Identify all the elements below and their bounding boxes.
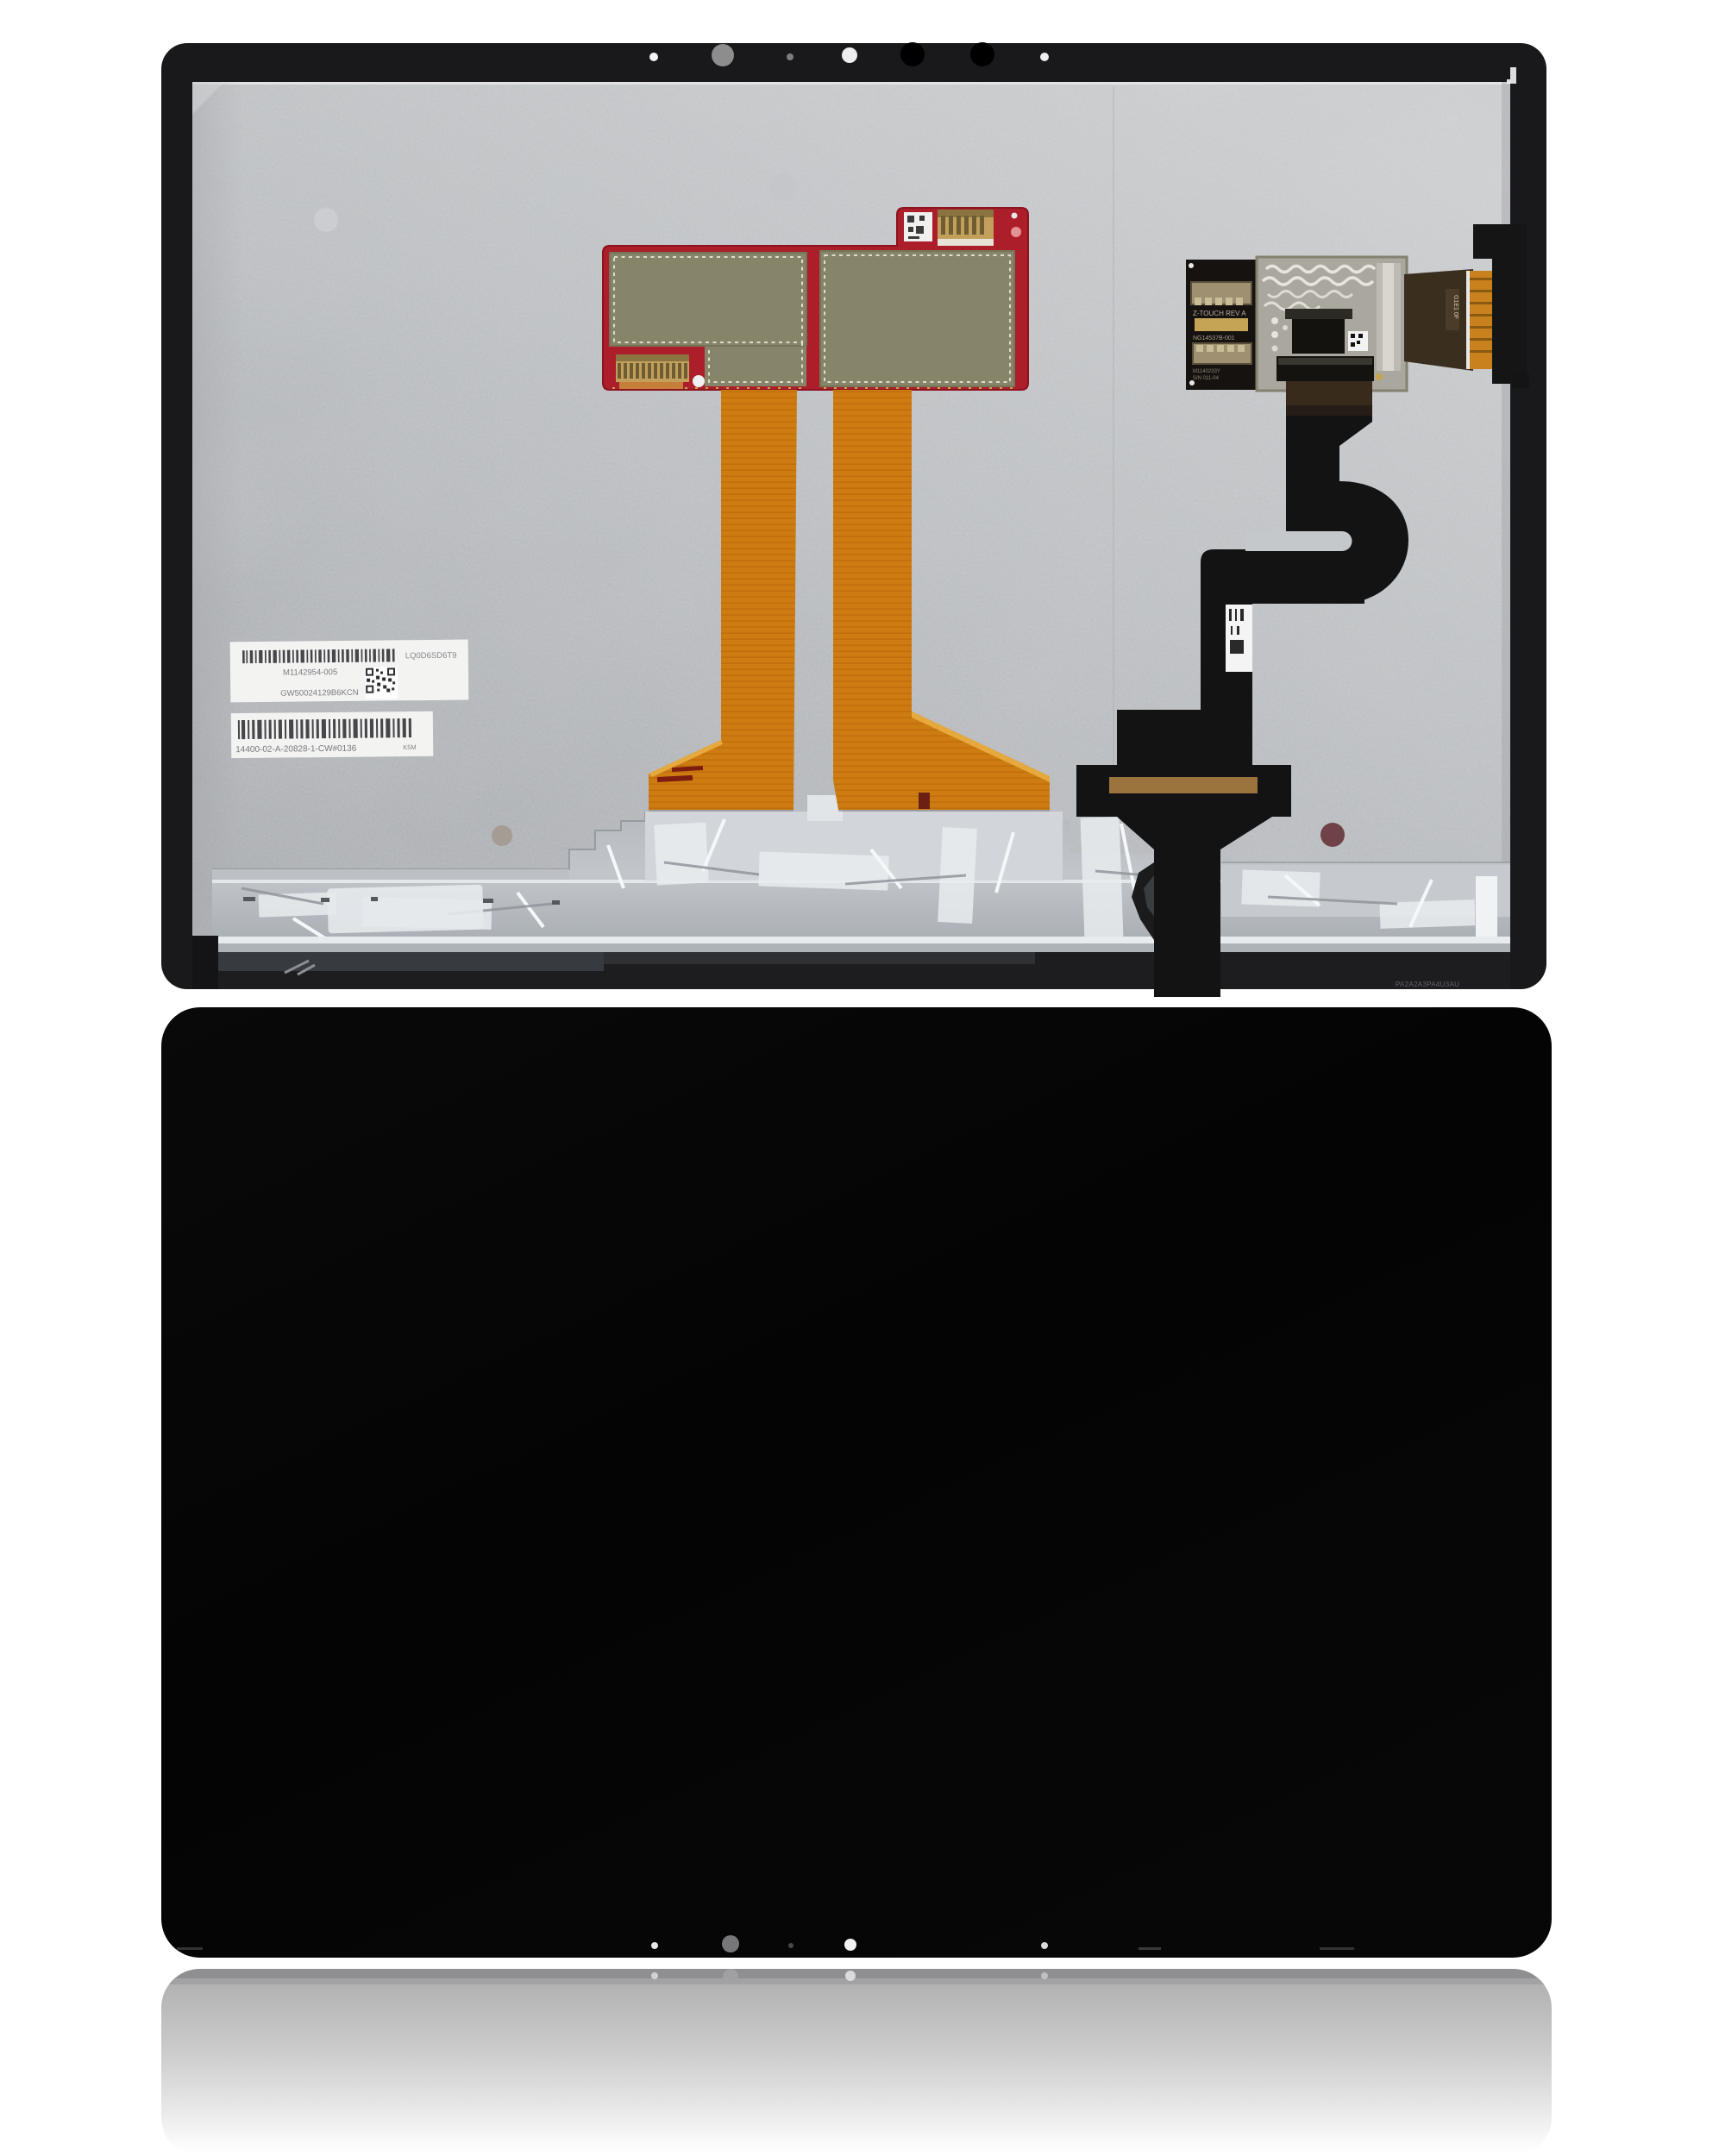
svg-text:M1142954-005: M1142954-005 (283, 667, 337, 678)
svg-text:GW50024129B6KCN: GW50024129B6KCN (280, 688, 359, 699)
svg-text:14400-02-A-20828-1-CW#0136: 14400-02-A-20828-1-CW#0136 (235, 744, 357, 755)
svg-text:M1140233Y: M1140233Y (1193, 369, 1220, 374)
svg-text:LQ0D6SD6T9: LQ0D6SD6T9 (405, 651, 457, 661)
svg-text:G1E1 0F: G1E1 0F (1452, 295, 1458, 319)
svg-text:Z-TOUCH REV A: Z-TOUCH REV A (1193, 310, 1246, 317)
svg-text:NG14537B-001: NG14537B-001 (1193, 335, 1235, 342)
svg-text:K5M: K5M (403, 743, 417, 751)
svg-text:S/N 011-04: S/N 011-04 (1193, 376, 1220, 381)
svg-text:PA2A2A3PA4U3AU: PA2A2A3PA4U3AU (1396, 981, 1459, 988)
